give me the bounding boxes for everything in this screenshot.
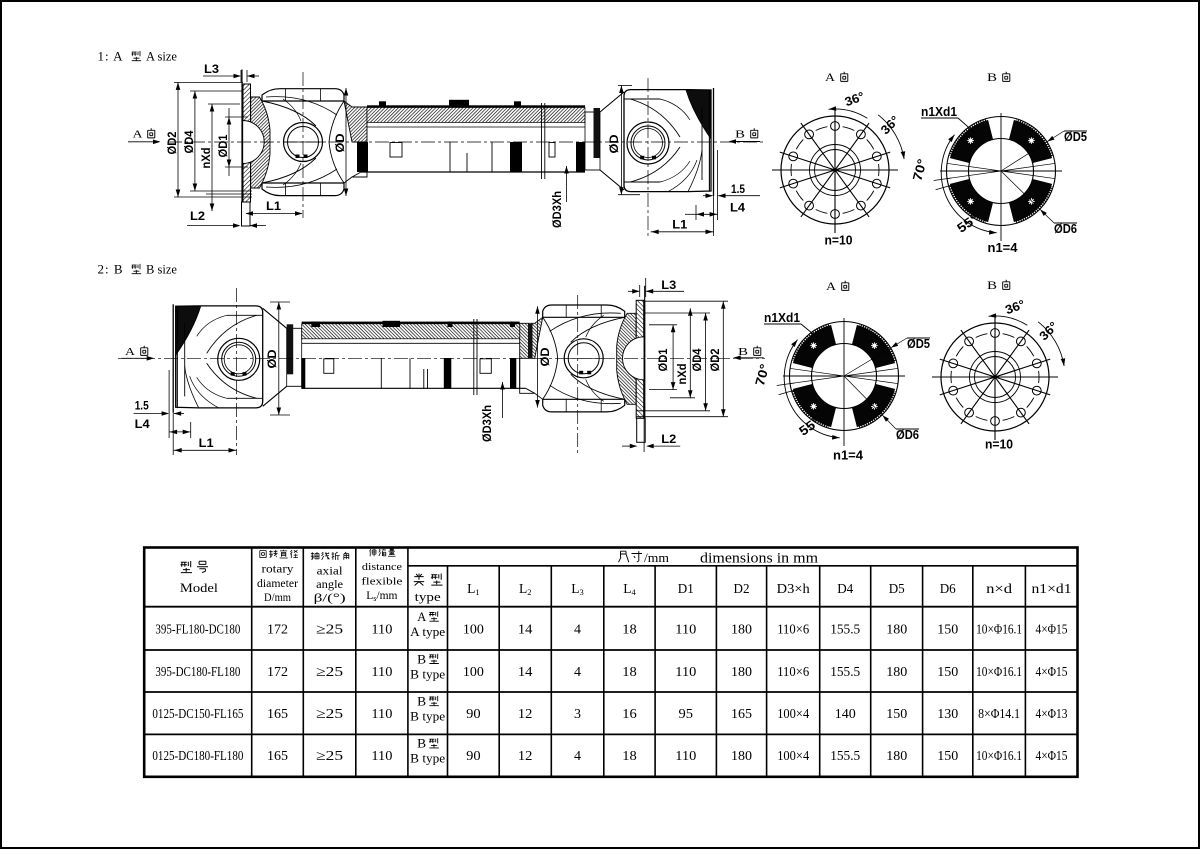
svg-text:A: A xyxy=(826,281,837,293)
svg-text:100×4: 100×4 xyxy=(777,749,809,764)
svg-text:ØD4: ØD4 xyxy=(692,348,704,372)
svg-text:Model: Model xyxy=(180,580,218,595)
svg-text:18: 18 xyxy=(622,623,637,638)
svg-text:B: B xyxy=(987,72,997,84)
svg-text:ØD: ØD xyxy=(267,350,279,369)
svg-text:B size: B size xyxy=(146,262,177,277)
svg-text:100×4: 100×4 xyxy=(777,707,809,722)
svg-text:155.5: 155.5 xyxy=(830,623,860,638)
svg-text:Ls/mm: Ls/mm xyxy=(366,590,397,603)
svg-text:110×6: 110×6 xyxy=(777,623,809,638)
svg-text:395-FL180-DC180: 395-FL180-DC180 xyxy=(155,622,240,637)
svg-text:165: 165 xyxy=(267,749,288,764)
svg-text:395-DC180-FL180: 395-DC180-FL180 xyxy=(155,664,240,679)
svg-text:155.5: 155.5 xyxy=(830,749,860,764)
svg-text:172: 172 xyxy=(267,665,288,680)
svg-text:distance: distance xyxy=(362,561,402,573)
svg-text:4: 4 xyxy=(574,623,581,638)
svg-text:L2: L2 xyxy=(661,432,676,446)
svg-text:4×Φ15: 4×Φ15 xyxy=(1036,623,1068,638)
svg-text:8×Φ14.1: 8×Φ14.1 xyxy=(978,707,1020,722)
svg-text:4×Φ15: 4×Φ15 xyxy=(1036,749,1068,764)
svg-text:150: 150 xyxy=(886,707,907,722)
svg-text:180: 180 xyxy=(886,749,907,764)
svg-text:4×Φ15: 4×Φ15 xyxy=(1036,665,1068,680)
svg-text:B type: B type xyxy=(410,752,445,766)
svg-text:L4: L4 xyxy=(730,201,745,215)
svg-text:3: 3 xyxy=(574,707,581,722)
svg-text:rotary: rotary xyxy=(262,564,294,576)
svg-text:A: A xyxy=(417,610,426,624)
svg-text:ØD4: ØD4 xyxy=(184,130,196,154)
svg-text:B type: B type xyxy=(410,710,445,724)
svg-text:D/mm: D/mm xyxy=(264,592,291,604)
svg-text:≥25: ≥25 xyxy=(316,707,343,722)
svg-text:L3: L3 xyxy=(204,62,219,76)
svg-text:180: 180 xyxy=(731,623,752,638)
svg-text:B type: B type xyxy=(410,667,445,681)
svg-text:180: 180 xyxy=(731,665,752,680)
svg-text:ØD6: ØD6 xyxy=(1054,222,1077,236)
svg-text:B: B xyxy=(987,280,997,292)
svg-text:angle: angle xyxy=(316,579,343,591)
svg-text:β/(°): β/(°) xyxy=(314,593,346,605)
svg-text:A size: A size xyxy=(146,49,177,64)
svg-text:flexible: flexible xyxy=(361,576,402,588)
svg-text:ØD: ØD xyxy=(335,134,347,153)
svg-text:L1: L1 xyxy=(266,199,281,213)
svg-text:n=10: n=10 xyxy=(985,437,1013,452)
svg-text:D1: D1 xyxy=(678,581,694,596)
svg-text:n=10: n=10 xyxy=(825,233,853,248)
svg-text:14: 14 xyxy=(518,623,533,638)
svg-text:165: 165 xyxy=(731,707,752,722)
svg-text:10×Φ16.1: 10×Φ16.1 xyxy=(976,665,1022,680)
svg-text:type: type xyxy=(415,590,442,604)
svg-text:180: 180 xyxy=(731,749,752,764)
svg-text:L3: L3 xyxy=(661,278,676,292)
svg-text:ØD5: ØD5 xyxy=(907,337,930,351)
svg-text:D4: D4 xyxy=(837,581,853,596)
svg-text:B: B xyxy=(417,737,426,751)
svg-text:0125-DC180-FL180: 0125-DC180-FL180 xyxy=(152,748,243,763)
svg-text:dimensions in mm: dimensions in mm xyxy=(700,551,819,567)
svg-text:18: 18 xyxy=(622,749,637,764)
svg-text:130: 130 xyxy=(937,707,958,722)
svg-text:ØD3Xh: ØD3Xh xyxy=(552,191,564,228)
svg-text:1: A: 1: A xyxy=(98,49,124,64)
svg-text:110: 110 xyxy=(371,707,392,722)
svg-text:ØD: ØD xyxy=(540,348,552,367)
svg-text:16: 16 xyxy=(622,707,637,722)
svg-text:2: B: 2: B xyxy=(98,262,124,277)
svg-text:172: 172 xyxy=(267,623,288,638)
svg-text:diameter: diameter xyxy=(257,578,298,590)
svg-text:≥25: ≥25 xyxy=(316,623,343,638)
svg-text:ØD3Xh: ØD3Xh xyxy=(482,405,494,442)
svg-text:4: 4 xyxy=(574,665,581,680)
svg-text:100: 100 xyxy=(463,665,484,680)
svg-text:110×6: 110×6 xyxy=(777,665,809,680)
svg-text:ØD5: ØD5 xyxy=(1064,130,1087,144)
svg-text:D5: D5 xyxy=(889,581,905,596)
svg-text:A: A xyxy=(133,129,143,141)
svg-text:150: 150 xyxy=(937,623,958,638)
svg-text:L2: L2 xyxy=(190,209,205,223)
svg-text:D2: D2 xyxy=(734,581,750,596)
svg-text:ØD1: ØD1 xyxy=(658,348,670,372)
svg-text:≥25: ≥25 xyxy=(316,749,343,764)
svg-text:180: 180 xyxy=(886,623,907,638)
svg-text:110: 110 xyxy=(675,623,696,638)
svg-text:140: 140 xyxy=(835,707,856,722)
svg-text:nXd: nXd xyxy=(201,148,213,169)
svg-text:ØD1: ØD1 xyxy=(218,134,230,158)
svg-text:110: 110 xyxy=(675,665,696,680)
svg-text:150: 150 xyxy=(937,665,958,680)
svg-text:L4: L4 xyxy=(135,417,150,431)
svg-text:4: 4 xyxy=(574,749,581,764)
svg-text:axial: axial xyxy=(317,566,343,578)
svg-text:A type: A type xyxy=(410,625,445,639)
svg-text:150: 150 xyxy=(937,749,958,764)
svg-text:n×d: n×d xyxy=(986,581,1012,596)
svg-text:18: 18 xyxy=(622,665,637,680)
svg-text:14: 14 xyxy=(518,665,533,680)
svg-text:1.5: 1.5 xyxy=(135,399,149,413)
svg-text:≥25: ≥25 xyxy=(316,665,343,680)
svg-text:D3×h: D3×h xyxy=(777,581,810,596)
svg-text:A: A xyxy=(125,346,135,358)
svg-text:L1: L1 xyxy=(672,218,687,232)
svg-text:B: B xyxy=(735,129,745,141)
svg-text:180: 180 xyxy=(886,665,907,680)
svg-text:n1=4: n1=4 xyxy=(988,240,1019,255)
svg-text:ØD6: ØD6 xyxy=(896,428,919,442)
svg-text:ØD2: ØD2 xyxy=(167,132,179,155)
svg-text:155.5: 155.5 xyxy=(830,665,860,680)
svg-text:A: A xyxy=(825,72,836,84)
svg-text:10×Φ16.1: 10×Φ16.1 xyxy=(976,749,1022,764)
svg-text:L1: L1 xyxy=(199,436,214,450)
svg-text:10×Φ16.1: 10×Φ16.1 xyxy=(976,623,1022,638)
svg-text:90: 90 xyxy=(466,749,481,764)
svg-text:ØD: ØD xyxy=(609,135,621,154)
svg-text:4×Φ13: 4×Φ13 xyxy=(1036,707,1068,722)
svg-text:n1=4: n1=4 xyxy=(833,448,864,463)
svg-text:100: 100 xyxy=(463,623,484,638)
svg-text:n1Xd1: n1Xd1 xyxy=(764,311,800,325)
svg-text:n1×d1: n1×d1 xyxy=(1032,581,1072,596)
svg-text:0125-DC150-FL165: 0125-DC150-FL165 xyxy=(152,706,243,721)
svg-text:12: 12 xyxy=(518,707,533,722)
svg-text:D6: D6 xyxy=(940,581,956,596)
svg-text:B: B xyxy=(417,695,426,709)
svg-text:110: 110 xyxy=(675,749,696,764)
svg-text:ØD2: ØD2 xyxy=(710,349,722,372)
svg-text:/mm: /mm xyxy=(644,550,669,565)
svg-text:110: 110 xyxy=(371,623,392,638)
svg-text:110: 110 xyxy=(371,749,392,764)
svg-text:95: 95 xyxy=(679,707,694,722)
svg-text:B: B xyxy=(417,652,426,666)
svg-text:1.5: 1.5 xyxy=(731,182,745,196)
svg-text:nXd: nXd xyxy=(677,364,689,385)
svg-text:12: 12 xyxy=(518,749,533,764)
svg-text:n1Xd1: n1Xd1 xyxy=(921,105,957,119)
svg-text:90: 90 xyxy=(466,707,481,722)
svg-text:165: 165 xyxy=(267,707,288,722)
svg-text:110: 110 xyxy=(371,665,392,680)
